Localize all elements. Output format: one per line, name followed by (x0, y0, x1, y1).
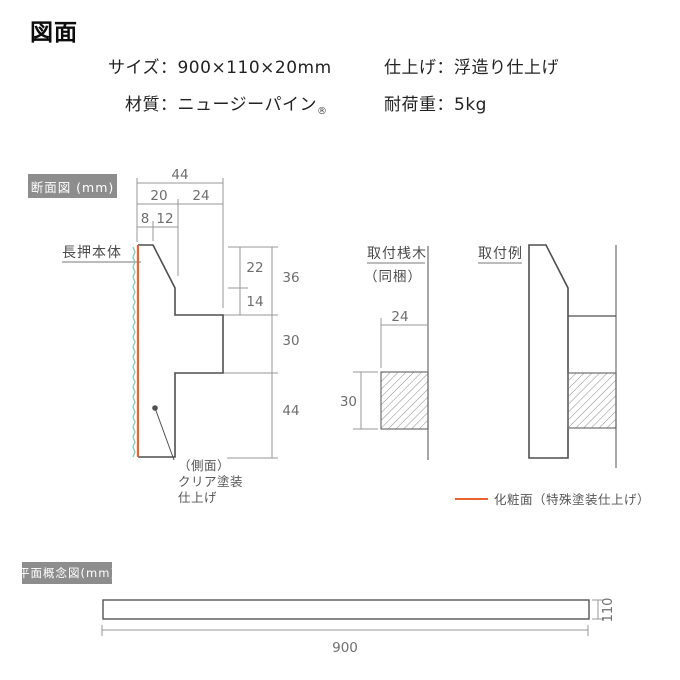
install-example-batten-hatched (568, 373, 616, 428)
side-note-line1: （側面） (178, 458, 230, 473)
registered-trademark-mark: ® (317, 106, 328, 117)
texture-wave-line (133, 247, 135, 457)
dim-36: 36 (282, 270, 299, 286)
spec-load: 耐荷重：5kg (384, 90, 487, 115)
side-note-line2: クリア塗装 (178, 474, 243, 489)
dim-12: 12 (156, 211, 173, 227)
dim-44-bottom: 44 (282, 403, 299, 419)
plan-view-drawing: 900 110 (0, 555, 680, 680)
leader-line (155, 408, 174, 460)
dim-14: 14 (246, 294, 263, 310)
diagram-page: 図面 サイズ：900×110×20mm 仕上げ：浮造り仕上げ 材質：ニュージーパ… (0, 0, 680, 680)
dim-24: 24 (192, 188, 209, 204)
dim-44-top: 44 (171, 167, 188, 183)
spec-material-text: 材質：ニュージーパイン (125, 95, 317, 115)
spec-size: サイズ：900×110×20mm (108, 53, 332, 78)
batten-title: 取付桟木 (367, 246, 427, 262)
dim-110: 110 (601, 598, 616, 623)
cross-section-drawing: 44 20 24 8 12 22 14 36 30 44 長押本体 （側面） ク… (0, 165, 680, 520)
legend-label: 化粧面（特殊塗装仕上げ） (494, 492, 650, 507)
batten-included-label: （同梱） (364, 269, 422, 285)
nageshi-profile-outline (138, 245, 223, 457)
spec-material: 材質：ニュージーパイン® (125, 90, 328, 115)
dim-22: 22 (246, 260, 263, 276)
batten-dim-24: 24 (391, 309, 408, 325)
page-title: 図面 (30, 13, 78, 47)
plank-length-dim-lines (102, 625, 588, 636)
plank-outline (103, 600, 589, 619)
install-example-title: 取付例 (478, 246, 523, 262)
nageshi-body-label: 長押本体 (62, 245, 122, 261)
dim-30: 30 (282, 333, 299, 349)
dim-8: 8 (141, 211, 150, 227)
side-note-line3: 仕上げ (178, 490, 217, 505)
batten-hatched-section (381, 372, 428, 429)
dim-20: 20 (150, 188, 167, 204)
dim-900: 900 (332, 640, 358, 656)
install-example-board-outline (529, 245, 568, 458)
batten-dim-30: 30 (340, 394, 357, 410)
spec-finish: 仕上げ：浮造り仕上げ (384, 53, 559, 78)
